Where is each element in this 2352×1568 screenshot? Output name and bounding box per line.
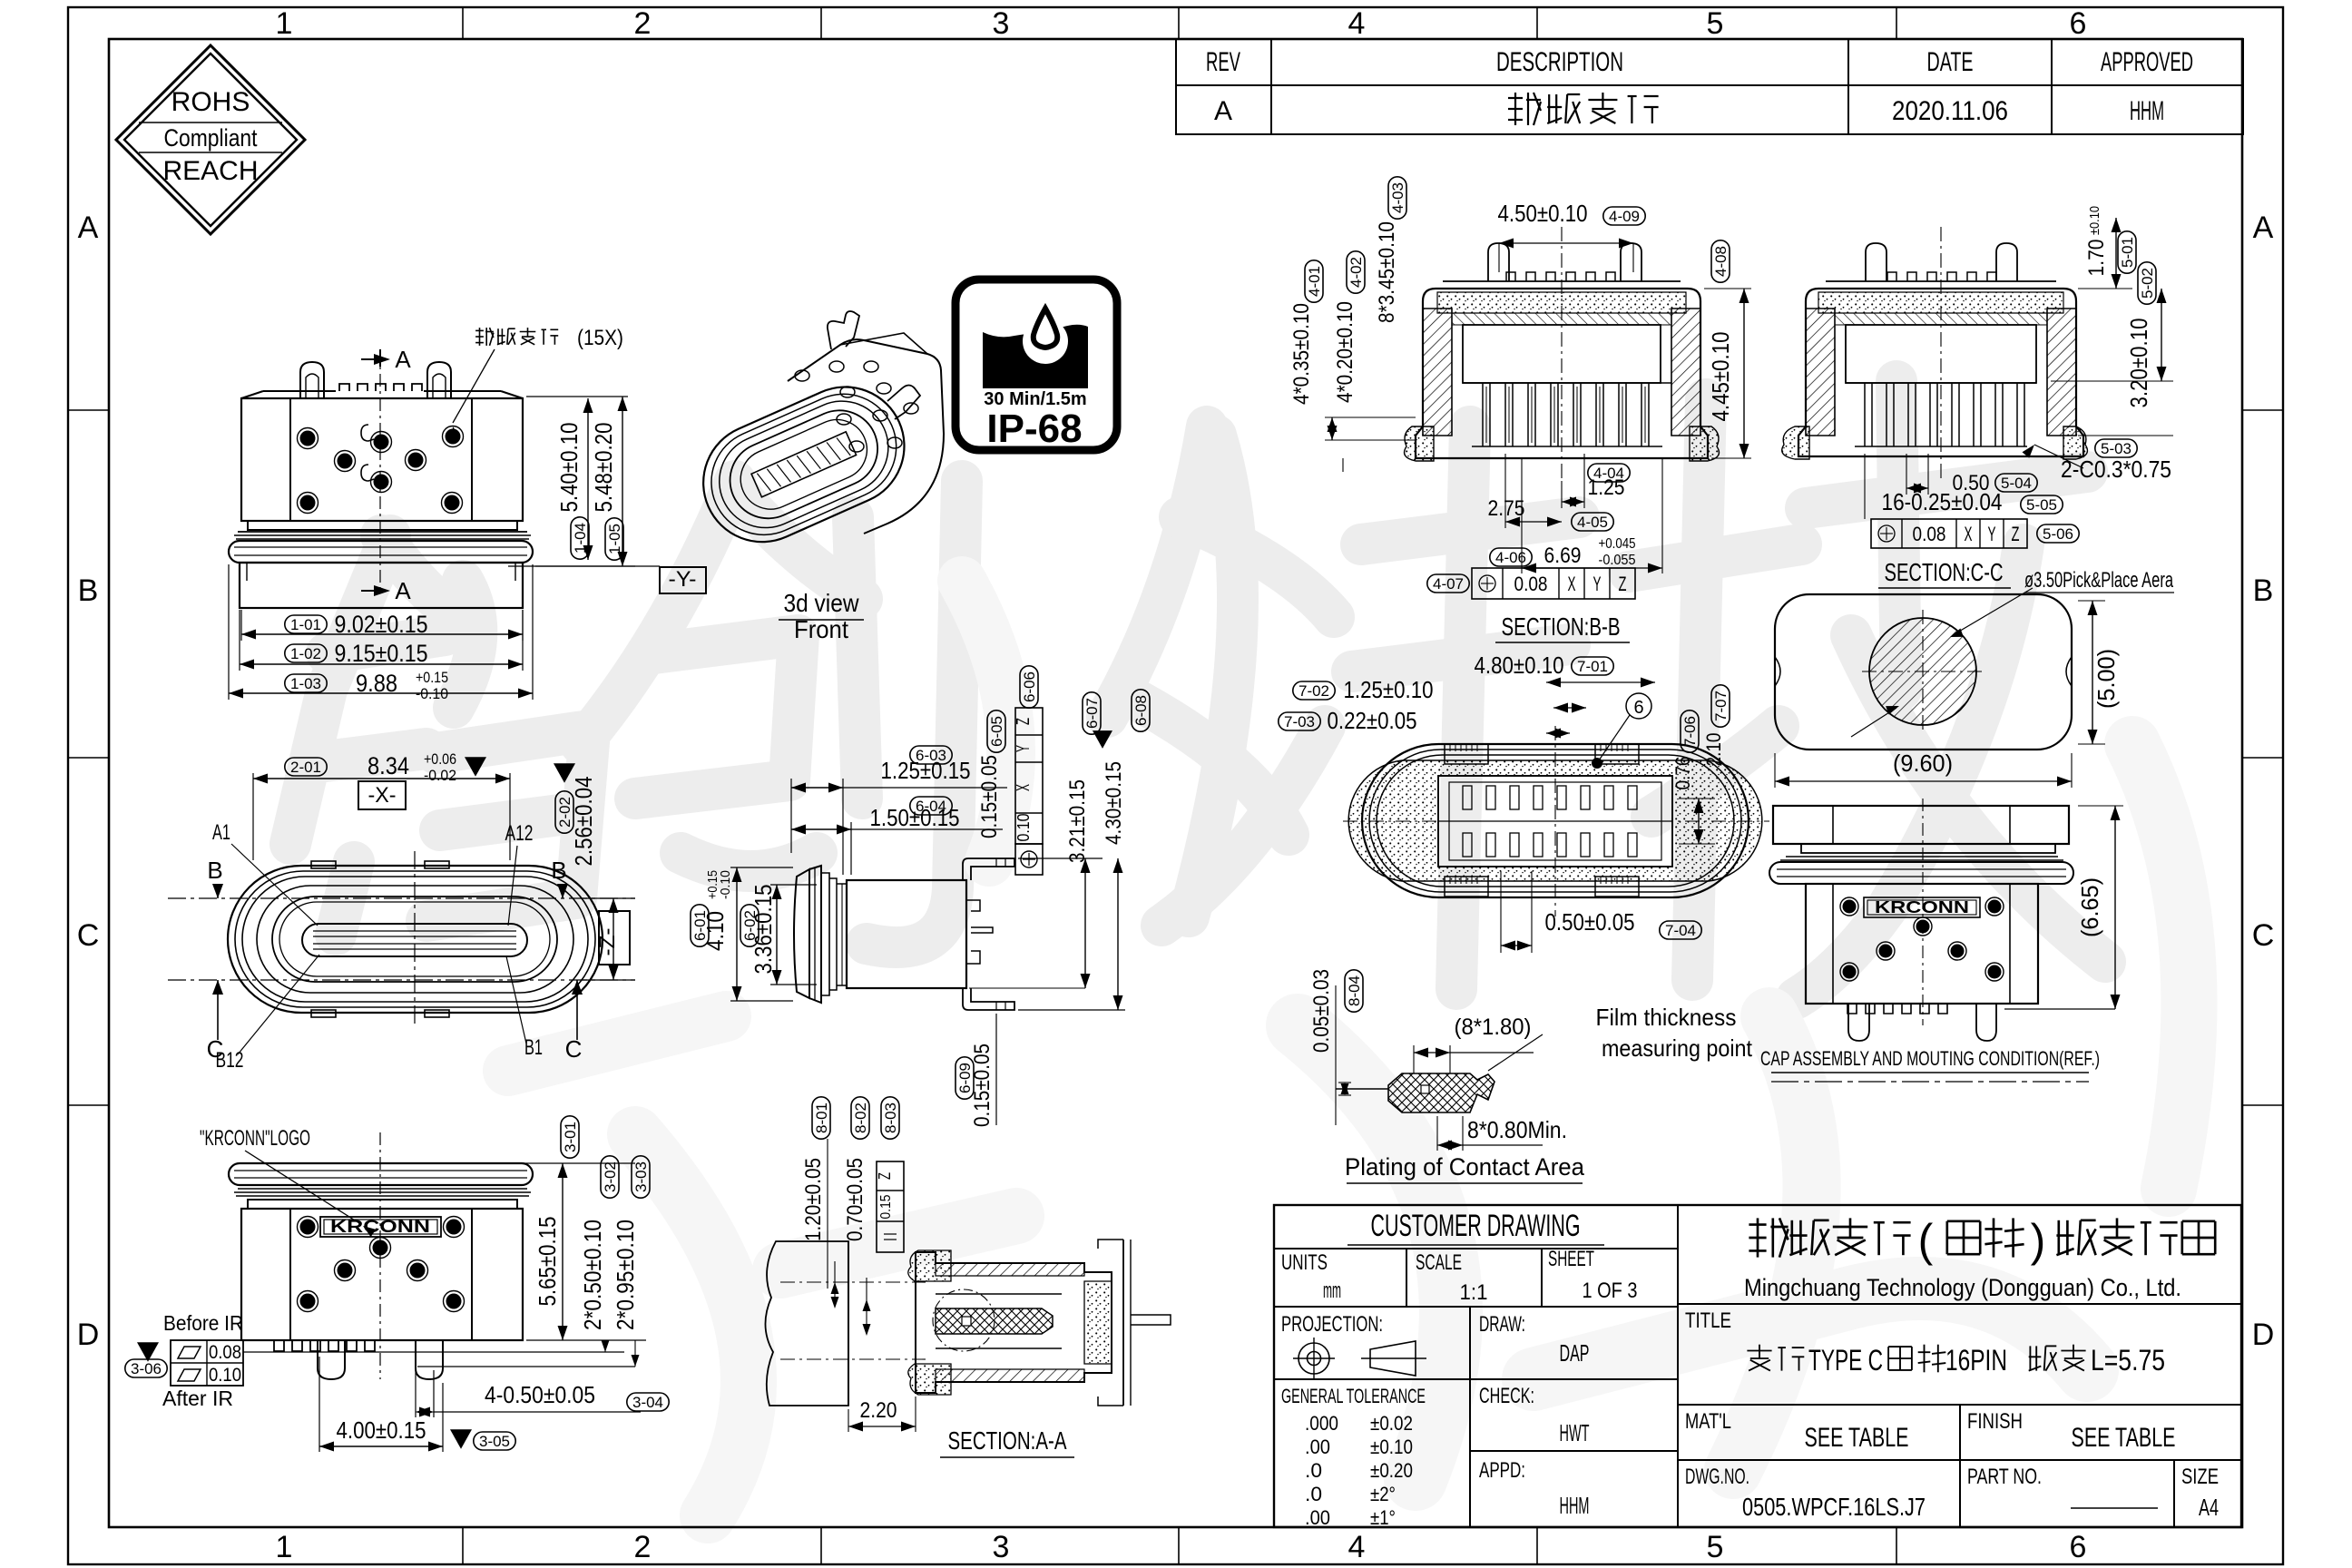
- svg-text:): ): [2031, 1215, 2046, 1266]
- svg-text:IP-68: IP-68: [986, 407, 1082, 451]
- svg-text:PART NO.: PART NO.: [1967, 1465, 2042, 1489]
- svg-text:1: 1: [276, 6, 293, 41]
- svg-text:3-01: 3-01: [562, 1122, 579, 1152]
- svg-text:SHEET: SHEET: [1548, 1247, 1594, 1271]
- svg-text:1-03: 1-03: [290, 675, 321, 692]
- svg-text:-Z-: -Z-: [595, 928, 620, 956]
- svg-text:GENERAL TOLERANCE: GENERAL TOLERANCE: [1281, 1385, 1426, 1407]
- svg-text:0.15: 0.15: [878, 1194, 894, 1219]
- svg-text:SEE TABLE: SEE TABLE: [1805, 1423, 1909, 1453]
- svg-text:Mingchuang Technology (Donggua: Mingchuang Technology (Dongguan) Co., Lt…: [1744, 1274, 2181, 1301]
- svg-text:7-02: 7-02: [1298, 682, 1329, 700]
- svg-text:7-01: 7-01: [1577, 658, 1608, 675]
- svg-text:0.05±0.03: 0.05±0.03: [1309, 969, 1334, 1053]
- svg-text:8-01: 8-01: [813, 1102, 830, 1133]
- svg-text:3-06: 3-06: [131, 1360, 162, 1377]
- svg-text:9.88: 9.88: [356, 670, 397, 697]
- svg-text:5.65±0.15: 5.65±0.15: [534, 1217, 561, 1307]
- svg-text:C: C: [207, 1035, 224, 1063]
- svg-text:Z: Z: [876, 1172, 894, 1180]
- svg-text:8-02: 8-02: [852, 1102, 869, 1133]
- svg-text:ø3.50Pick&Place Aera: ø3.50Pick&Place Aera: [2024, 568, 2173, 593]
- svg-text:7-07: 7-07: [1712, 691, 1730, 721]
- svg-text:8*3.45±0.10: 8*3.45±0.10: [1375, 221, 1399, 323]
- svg-text:2.20: 2.20: [860, 1398, 897, 1423]
- svg-text:3.20±0.10: 3.20±0.10: [2125, 318, 2152, 408]
- svg-text:DWG.NO.: DWG.NO.: [1685, 1465, 1749, 1489]
- svg-text:D: D: [77, 1318, 100, 1352]
- svg-text:X: X: [1965, 523, 1973, 545]
- svg-text:8-03: 8-03: [882, 1102, 899, 1133]
- svg-text:16PIN: 16PIN: [1945, 1344, 2007, 1377]
- svg-text:A: A: [395, 346, 411, 373]
- svg-text:6: 6: [1633, 698, 1643, 718]
- svg-text:ROHS: ROHS: [171, 87, 250, 117]
- svg-text:1 OF 3: 1 OF 3: [1583, 1279, 1638, 1303]
- svg-text:REV: REV: [1206, 47, 1240, 77]
- svg-text:Z: Z: [1014, 718, 1034, 725]
- svg-text:3: 3: [993, 1530, 1010, 1564]
- svg-text:3-05: 3-05: [479, 1433, 510, 1450]
- svg-text:.000: .000: [1305, 1412, 1338, 1435]
- svg-text:7-03: 7-03: [1284, 713, 1315, 730]
- svg-text:B: B: [2253, 573, 2274, 608]
- svg-text:CHECK:: CHECK:: [1479, 1384, 1534, 1408]
- svg-text:B: B: [207, 857, 222, 884]
- svg-text:5.40±0.10: 5.40±0.10: [555, 423, 583, 513]
- svg-text:.0: .0: [1305, 1459, 1322, 1482]
- svg-text:1.20±0.05: 1.20±0.05: [801, 1158, 826, 1241]
- svg-text:HHM: HHM: [2130, 96, 2164, 126]
- svg-text:1.50±0.15: 1.50±0.15: [870, 804, 960, 831]
- svg-text:7-06: 7-06: [1681, 716, 1699, 747]
- svg-text:TITLE: TITLE: [1685, 1308, 1731, 1333]
- svg-text:1: 1: [276, 1530, 293, 1564]
- svg-text:HHM: HHM: [1560, 1492, 1590, 1519]
- svg-text:4-07: 4-07: [1433, 575, 1464, 593]
- svg-text:-0.055: -0.055: [1599, 553, 1636, 568]
- svg-text:1-02: 1-02: [290, 645, 321, 662]
- svg-text:measuring point: measuring point: [1602, 1034, 1753, 1062]
- svg-text:8.34: 8.34: [367, 752, 409, 779]
- svg-text:Y: Y: [1988, 523, 1996, 545]
- svg-text:APPROVED: APPROVED: [2101, 47, 2193, 77]
- svg-text:-X-: -X-: [368, 783, 397, 808]
- svg-text:3d view: 3d view: [784, 589, 860, 617]
- svg-text:9.02±0.15: 9.02±0.15: [335, 611, 428, 638]
- svg-text:(6.65): (6.65): [2076, 877, 2103, 937]
- svg-text:5.48±0.20: 5.48±0.20: [590, 423, 617, 513]
- svg-text:Y: Y: [1014, 745, 1034, 752]
- svg-text:4: 4: [1348, 6, 1366, 41]
- svg-text:After IR: After IR: [162, 1387, 233, 1410]
- svg-text:mm: mm: [1323, 1279, 1341, 1303]
- svg-text:.0: .0: [1305, 1483, 1322, 1505]
- svg-text:0.22±0.05: 0.22±0.05: [1328, 707, 1417, 734]
- svg-text:3.21±0.15: 3.21±0.15: [1065, 779, 1090, 863]
- svg-text:.00: .00: [1305, 1506, 1330, 1529]
- svg-text:1-05: 1-05: [606, 524, 623, 554]
- svg-text:8*0.80Min.: 8*0.80Min.: [1467, 1116, 1567, 1143]
- svg-text:5-01: 5-01: [2119, 237, 2136, 268]
- svg-text:2.56±0.04: 2.56±0.04: [570, 777, 597, 867]
- svg-text:HWT: HWT: [1560, 1419, 1590, 1446]
- svg-text:0.08: 0.08: [1514, 573, 1548, 595]
- svg-text:REACH: REACH: [162, 156, 258, 186]
- svg-text:SECTION:C-C: SECTION:C-C: [1885, 558, 2004, 586]
- svg-text:CAP ASSEMBLY AND MOUTING CONDI: CAP ASSEMBLY AND MOUTING CONDITION(REF.): [1760, 1047, 2100, 1070]
- svg-text:(5.00): (5.00): [2092, 649, 2120, 709]
- svg-text:7-04: 7-04: [1665, 922, 1696, 939]
- svg-text:X: X: [1014, 784, 1034, 791]
- svg-text:C: C: [77, 918, 100, 953]
- svg-text:5: 5: [1707, 1530, 1724, 1564]
- svg-text:DRAW:: DRAW:: [1479, 1312, 1525, 1337]
- svg-text:L=5.75: L=5.75: [2091, 1344, 2165, 1377]
- svg-text:4-02: 4-02: [1347, 257, 1365, 288]
- svg-text:1.25±0.15: 1.25±0.15: [881, 757, 971, 784]
- svg-text:2*0.50±0.10: 2*0.50±0.10: [579, 1220, 606, 1330]
- svg-text:1.25: 1.25: [1588, 475, 1625, 500]
- svg-text:16-0.25±0.04: 16-0.25±0.04: [1882, 488, 2003, 515]
- svg-text:±0.10: ±0.10: [1370, 1436, 1413, 1458]
- svg-text:Front: Front: [794, 615, 848, 643]
- svg-text:0.10: 0.10: [1014, 814, 1033, 842]
- svg-text:+0.045: +0.045: [1599, 536, 1636, 552]
- svg-text:"KRCONN"LOGO: "KRCONN"LOGO: [200, 1126, 310, 1151]
- svg-text:5-06: 5-06: [2043, 525, 2073, 543]
- svg-text:6: 6: [2070, 1530, 2087, 1564]
- svg-text:TYPE C: TYPE C: [1808, 1344, 1883, 1377]
- svg-text:C: C: [2252, 918, 2275, 953]
- svg-text:±0.02: ±0.02: [1370, 1412, 1413, 1435]
- svg-text:1-04: 1-04: [572, 523, 589, 554]
- svg-text:(8*1.80): (8*1.80): [1455, 1014, 1532, 1040]
- svg-text:SCALE: SCALE: [1416, 1250, 1462, 1275]
- svg-text:B: B: [551, 857, 566, 884]
- svg-text:SEE TABLE: SEE TABLE: [2072, 1423, 2176, 1453]
- svg-text:2.75: 2.75: [1488, 496, 1525, 521]
- svg-text:0.70±0.05: 0.70±0.05: [843, 1158, 867, 1241]
- svg-text:APPD:: APPD:: [1479, 1458, 1525, 1483]
- svg-text:3-03: 3-03: [632, 1161, 650, 1192]
- svg-text:D: D: [2252, 1318, 2275, 1352]
- svg-text:6-06: 6-06: [1021, 671, 1038, 702]
- svg-text:SECTION:B-B: SECTION:B-B: [1502, 612, 1621, 641]
- svg-text:0505.WPCF.16LS.J7: 0505.WPCF.16LS.J7: [1742, 1493, 1926, 1521]
- svg-text:4.50±0.10: 4.50±0.10: [1498, 200, 1588, 227]
- svg-text:2: 2: [634, 1530, 652, 1564]
- svg-text:A: A: [395, 577, 411, 604]
- svg-text:4.30±0.15: 4.30±0.15: [1102, 761, 1126, 845]
- svg-text:FINISH: FINISH: [1967, 1409, 2023, 1434]
- svg-text:5: 5: [1707, 6, 1724, 41]
- svg-text:2-C0.3*0.75: 2-C0.3*0.75: [2061, 456, 2171, 483]
- svg-text:6-08: 6-08: [1132, 695, 1150, 726]
- svg-text:MAT'L: MAT'L: [1685, 1409, 1731, 1434]
- svg-text:±2°: ±2°: [1370, 1483, 1396, 1505]
- svg-text:(15X): (15X): [577, 326, 623, 350]
- svg-text:4*0.35±0.10: 4*0.35±0.10: [1289, 303, 1314, 405]
- svg-text:3-02: 3-02: [602, 1161, 619, 1192]
- svg-text:DESCRIPTION: DESCRIPTION: [1496, 47, 1623, 77]
- svg-text:4-08: 4-08: [1712, 246, 1730, 277]
- svg-text:Before IR: Before IR: [163, 1311, 243, 1335]
- svg-text:4-05: 4-05: [1577, 514, 1608, 531]
- svg-text:A: A: [2253, 211, 2274, 245]
- svg-text:5-05: 5-05: [2026, 496, 2057, 514]
- svg-text:Z: Z: [2012, 523, 2020, 545]
- svg-text:A1: A1: [212, 820, 230, 845]
- svg-text:4.10: 4.10: [701, 911, 729, 951]
- svg-text:-Y-: -Y-: [669, 567, 697, 592]
- svg-text:4: 4: [1348, 1530, 1366, 1564]
- svg-text:0.08: 0.08: [209, 1342, 241, 1363]
- svg-text:-0.02: -0.02: [424, 767, 456, 784]
- svg-text:1:1: 1:1: [1460, 1280, 1488, 1305]
- svg-text:A: A: [78, 211, 99, 245]
- svg-text:1-01: 1-01: [290, 616, 321, 633]
- svg-text:2*0.95±0.10: 2*0.95±0.10: [612, 1220, 639, 1330]
- svg-text:8-04: 8-04: [1346, 975, 1363, 1006]
- svg-text:DATE: DATE: [1927, 47, 1974, 77]
- svg-text:(: (: [1918, 1215, 1934, 1266]
- svg-text:Y: Y: [1593, 573, 1602, 595]
- svg-text:.00: .00: [1305, 1436, 1330, 1458]
- svg-text:KRCONN: KRCONN: [1875, 898, 1969, 916]
- svg-text:4-09: 4-09: [1609, 208, 1640, 225]
- svg-text:+0.06: +0.06: [424, 750, 456, 768]
- svg-text:3-04: 3-04: [632, 1394, 663, 1411]
- svg-text:2-01: 2-01: [290, 759, 321, 776]
- svg-text:6-07: 6-07: [1083, 698, 1101, 729]
- svg-text:1.25±0.10: 1.25±0.10: [1344, 676, 1434, 703]
- svg-text:X: X: [1568, 573, 1576, 595]
- svg-text:Plating of Contact Area: Plating of Contact Area: [1345, 1153, 1585, 1181]
- svg-text:4.45±0.10: 4.45±0.10: [1707, 332, 1734, 422]
- svg-text:+0.15: +0.15: [416, 669, 448, 686]
- svg-text:A4: A4: [2199, 1494, 2219, 1521]
- svg-text:6-05: 6-05: [988, 716, 1005, 747]
- svg-text:6.69: 6.69: [1544, 544, 1582, 568]
- svg-text:2: 2: [634, 6, 652, 41]
- svg-text:PROJECTION:: PROJECTION:: [1281, 1312, 1383, 1337]
- svg-text:4-06: 4-06: [1495, 549, 1526, 566]
- svg-text:5-04: 5-04: [2001, 475, 2032, 492]
- svg-text:9.15±0.15: 9.15±0.15: [335, 640, 428, 667]
- svg-text:Z: Z: [1619, 573, 1627, 595]
- svg-text:4-01: 4-01: [1306, 266, 1323, 297]
- svg-text:0.08: 0.08: [1913, 523, 1946, 545]
- svg-text:5-02: 5-02: [2139, 268, 2156, 299]
- svg-text:4-03: 4-03: [1389, 182, 1406, 213]
- svg-text:4.00±0.15: 4.00±0.15: [337, 1416, 426, 1444]
- svg-text:B1: B1: [524, 1035, 543, 1060]
- svg-text:2.10: 2.10: [1702, 733, 1725, 767]
- svg-text:±0.20: ±0.20: [1370, 1459, 1413, 1482]
- svg-text:0.76: 0.76: [1671, 757, 1694, 790]
- svg-text:1.70: 1.70: [2084, 240, 2109, 277]
- svg-text:CUSTOMER DRAWING: CUSTOMER DRAWING: [1371, 1209, 1581, 1243]
- svg-text:2020.11.06: 2020.11.06: [1892, 96, 2008, 126]
- svg-text:4.80±0.10: 4.80±0.10: [1475, 652, 1564, 679]
- svg-text:4-0.50±0.05: 4-0.50±0.05: [485, 1381, 595, 1408]
- svg-text:DAP: DAP: [1560, 1339, 1590, 1367]
- svg-text:Compliant: Compliant: [164, 124, 258, 152]
- svg-text:C: C: [565, 1035, 583, 1063]
- svg-text:Film thickness: Film thickness: [1596, 1004, 1737, 1031]
- svg-text:4*0.20±0.10: 4*0.20±0.10: [1333, 301, 1357, 403]
- svg-text:B: B: [78, 573, 99, 608]
- svg-text:-0.10: -0.10: [718, 870, 733, 899]
- svg-text:6: 6: [2070, 6, 2087, 41]
- svg-text:A12: A12: [505, 821, 534, 846]
- svg-text:-0.10: -0.10: [416, 685, 448, 702]
- svg-text:SIZE: SIZE: [2181, 1465, 2219, 1489]
- svg-text:±0.10: ±0.10: [2087, 206, 2102, 235]
- svg-text:0.15±0.05: 0.15±0.05: [970, 1044, 995, 1127]
- svg-text:UNITS: UNITS: [1281, 1250, 1328, 1275]
- svg-text:SECTION:A-A: SECTION:A-A: [948, 1426, 1067, 1455]
- svg-text:0.15±0.05: 0.15±0.05: [977, 755, 1002, 838]
- svg-text:0.50±0.05: 0.50±0.05: [1545, 908, 1635, 936]
- svg-text:0.10: 0.10: [209, 1365, 241, 1386]
- svg-text:±1°: ±1°: [1370, 1506, 1396, 1529]
- svg-text:A: A: [1214, 96, 1232, 126]
- svg-text:3: 3: [993, 6, 1010, 41]
- svg-text:(9.60): (9.60): [1893, 750, 1953, 777]
